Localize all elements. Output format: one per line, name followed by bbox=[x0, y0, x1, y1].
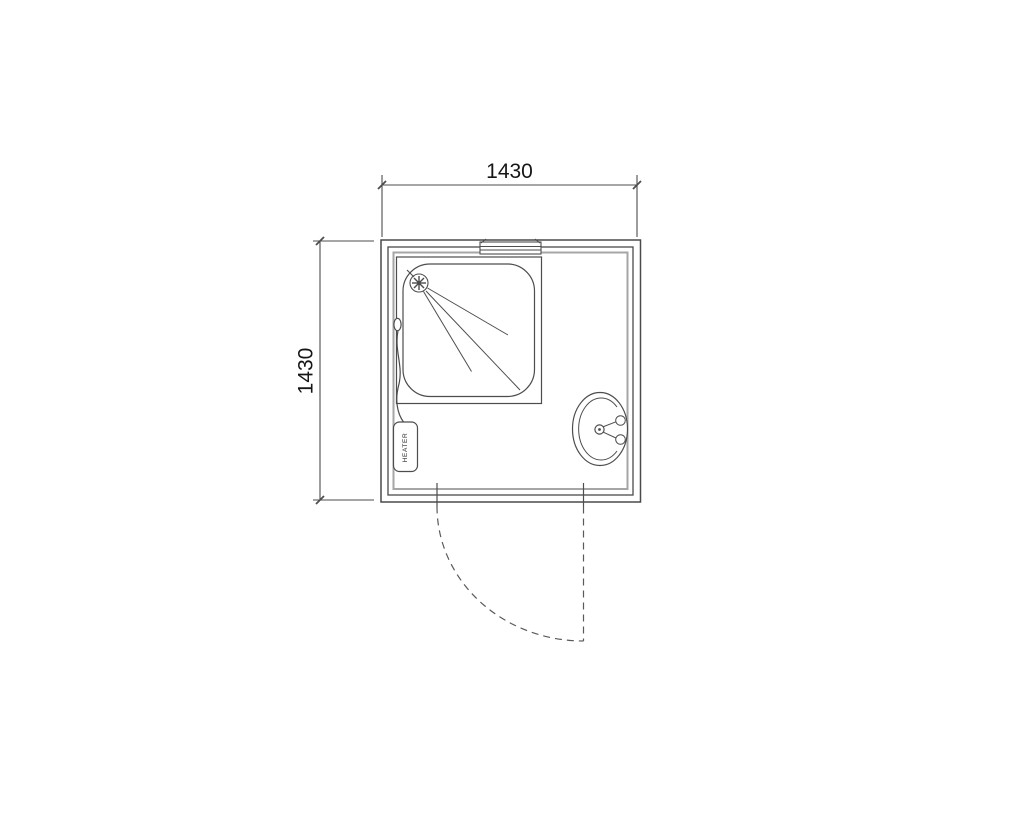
basin-drain-dot bbox=[598, 428, 601, 431]
shower-control-cable bbox=[394, 318, 404, 422]
heater-label: HEATER bbox=[401, 422, 410, 473]
door-swing-arc bbox=[437, 507, 584, 642]
left-dimension bbox=[313, 237, 374, 504]
top-dimension-label: 1430 bbox=[382, 161, 637, 183]
floorplan-canvas: 1430 1430 HEATER bbox=[0, 0, 1024, 819]
left-dimension-label: 1430 bbox=[296, 244, 318, 499]
spray-line-2 bbox=[426, 291, 520, 390]
shower-tray bbox=[403, 264, 535, 397]
door bbox=[437, 483, 584, 641]
floorplan-drawing bbox=[0, 0, 1024, 819]
basin-tap-bottom bbox=[616, 435, 626, 445]
shower-head-icon bbox=[407, 270, 428, 292]
spray-line-1 bbox=[428, 288, 509, 335]
window-icon bbox=[480, 239, 541, 254]
shower-valve-icon bbox=[394, 318, 401, 330]
shower-head-center bbox=[418, 282, 421, 285]
basin-tap-top bbox=[616, 416, 626, 426]
shower-spray-lines bbox=[424, 288, 521, 390]
top-dimension bbox=[378, 175, 641, 237]
shower bbox=[397, 257, 542, 404]
basin bbox=[573, 393, 628, 466]
window-frame bbox=[480, 242, 541, 254]
shower-enclosure bbox=[397, 257, 542, 404]
